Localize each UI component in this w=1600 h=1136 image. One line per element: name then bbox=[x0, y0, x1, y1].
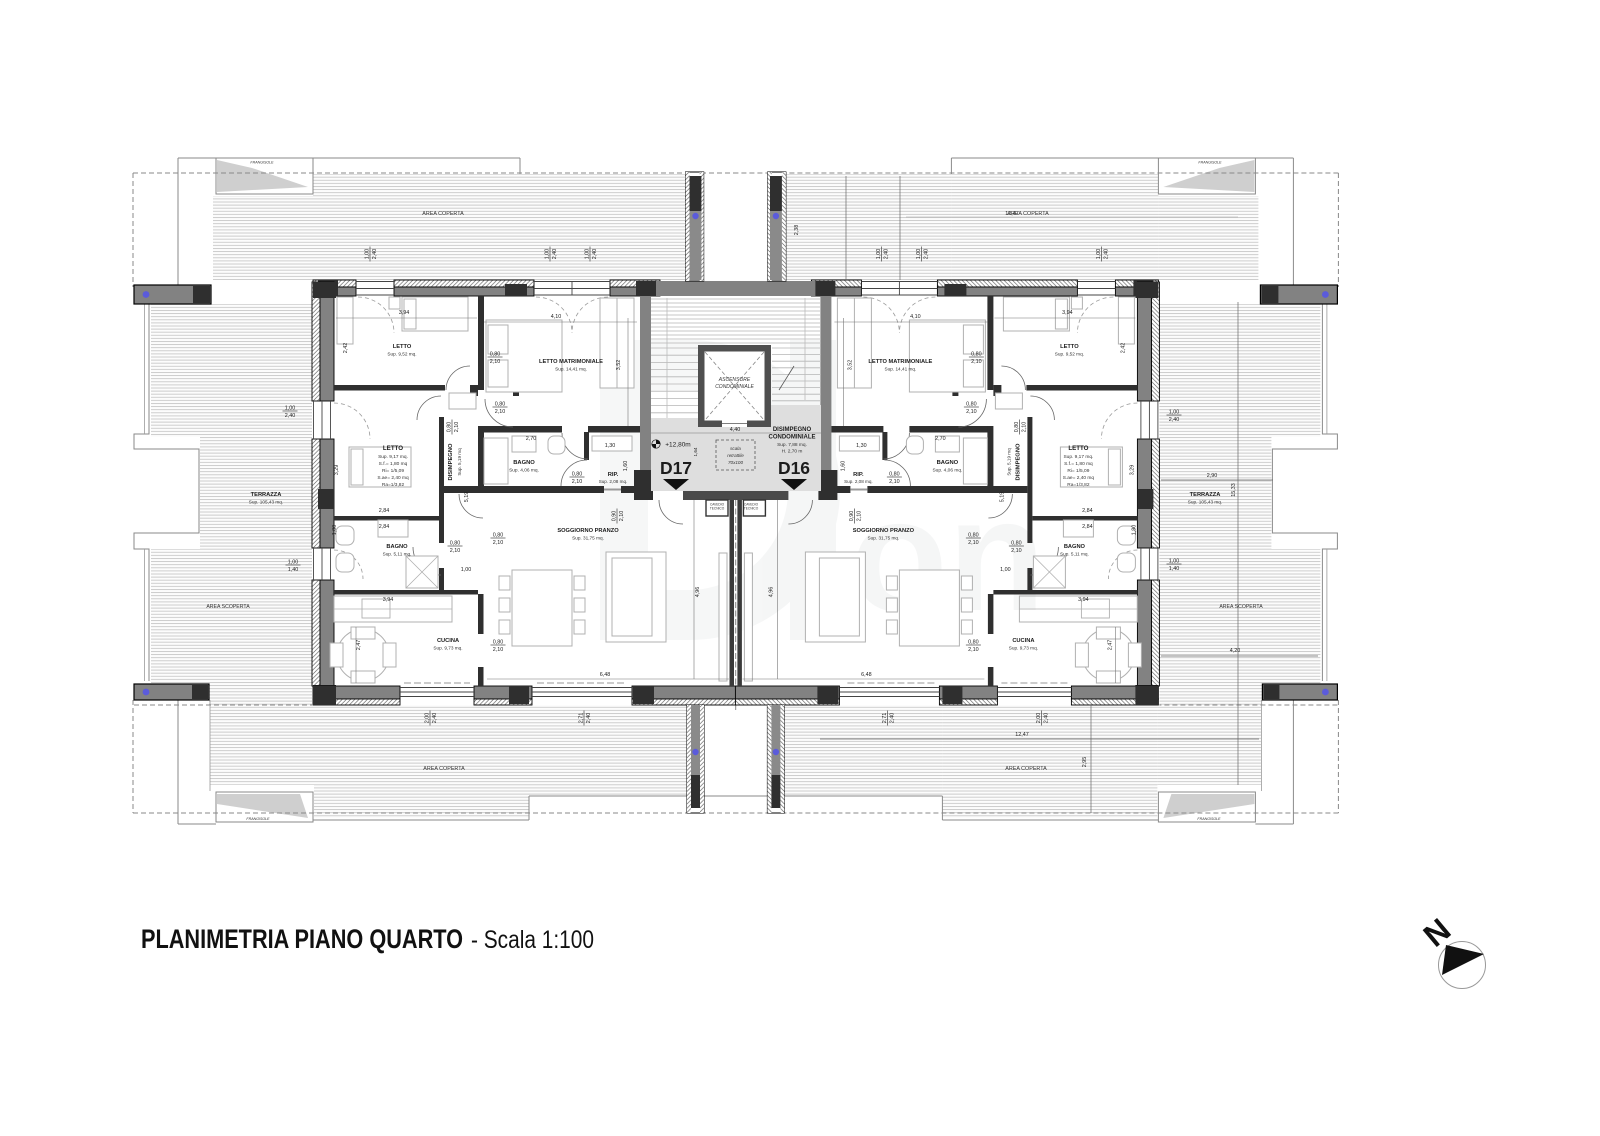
svg-text:0,90: 0,90 bbox=[611, 511, 617, 522]
svg-text:AREA SCOPERTA: AREA SCOPERTA bbox=[1219, 604, 1263, 610]
svg-text:Sup. 5,19 mq: Sup. 5,19 mq bbox=[457, 448, 462, 476]
svg-text:Ra=1/3,82: Ra=1/3,82 bbox=[382, 482, 405, 488]
svg-text:0,90: 0,90 bbox=[849, 511, 855, 522]
svg-text:1,80: 1,80 bbox=[1131, 525, 1137, 536]
svg-text:CUCINA: CUCINA bbox=[1012, 638, 1034, 644]
svg-text:4,10: 4,10 bbox=[551, 314, 562, 320]
svg-text:2,40: 2,40 bbox=[1104, 249, 1110, 260]
svg-text:Sup. 5,11 mq.: Sup. 5,11 mq. bbox=[383, 552, 412, 557]
svg-text:1,00: 1,00 bbox=[876, 249, 882, 260]
svg-text:SOGGIORNO PRANZO: SOGGIORNO PRANZO bbox=[557, 528, 619, 534]
svg-text:2,10: 2,10 bbox=[966, 409, 977, 415]
svg-text:AREA COPERTA: AREA COPERTA bbox=[423, 766, 465, 772]
svg-text:4,96: 4,96 bbox=[695, 587, 701, 598]
svg-text:2,10: 2,10 bbox=[971, 359, 982, 365]
svg-text:TECNICO: TECNICO bbox=[710, 507, 725, 511]
svg-text:1,00: 1,00 bbox=[285, 405, 296, 411]
svg-text:2,40: 2,40 bbox=[592, 249, 598, 260]
svg-text:3,29: 3,29 bbox=[1129, 465, 1135, 476]
svg-text:CUCINA: CUCINA bbox=[437, 638, 459, 644]
svg-text:Sup. 9,73 mq.: Sup. 9,73 mq. bbox=[1009, 646, 1038, 651]
svg-text:S.f.= 1,80 mq: S.f.= 1,80 mq bbox=[379, 461, 408, 467]
svg-text:6,48: 6,48 bbox=[861, 672, 872, 678]
svg-text:2,10: 2,10 bbox=[968, 647, 979, 653]
svg-text:2,10: 2,10 bbox=[857, 511, 863, 522]
svg-text:FRANGISOLE: FRANGISOLE bbox=[1198, 161, 1222, 165]
svg-text:PLANIMETRIA PIANO QUARTO: PLANIMETRIA PIANO QUARTO bbox=[141, 924, 463, 954]
svg-text:2,71: 2,71 bbox=[578, 713, 584, 724]
svg-text:1,00: 1,00 bbox=[461, 567, 472, 573]
svg-text:2,95: 2,95 bbox=[1082, 757, 1088, 768]
svg-text:Sup. 2,08 mq.: Sup. 2,08 mq. bbox=[844, 479, 873, 484]
svg-text:1,00: 1,00 bbox=[288, 559, 299, 565]
svg-text:0,80: 0,80 bbox=[966, 401, 977, 407]
svg-text:1,40: 1,40 bbox=[288, 567, 299, 573]
svg-text:4,20: 4,20 bbox=[1230, 648, 1241, 654]
svg-text:LETTO MATRIMONIALE: LETTO MATRIMONIALE bbox=[539, 359, 603, 365]
svg-text:Sup. 14,41 mq.: Sup. 14,41 mq. bbox=[555, 367, 587, 372]
svg-text:2,90: 2,90 bbox=[1207, 473, 1218, 479]
svg-text:LETTO: LETTO bbox=[383, 445, 403, 452]
svg-text:Sup. 9,52 mq.: Sup. 9,52 mq. bbox=[1055, 352, 1084, 357]
svg-text:2,40: 2,40 bbox=[432, 713, 438, 724]
svg-text:2,40: 2,40 bbox=[552, 249, 558, 260]
svg-text:4,96: 4,96 bbox=[768, 587, 774, 598]
svg-text:D16: D16 bbox=[778, 458, 810, 478]
svg-text:2,70: 2,70 bbox=[935, 436, 946, 442]
svg-text:70x100: 70x100 bbox=[728, 460, 744, 465]
svg-text:2,40: 2,40 bbox=[285, 413, 296, 419]
svg-text:AREA COPERTA: AREA COPERTA bbox=[1007, 211, 1049, 217]
svg-text:TERRAZZA: TERRAZZA bbox=[1190, 492, 1221, 498]
svg-text:3,52: 3,52 bbox=[616, 360, 622, 371]
svg-text:Sup. 5,11 mq.: Sup. 5,11 mq. bbox=[1060, 552, 1089, 557]
svg-text:+12,80m: +12,80m bbox=[665, 442, 690, 449]
svg-text:2,10: 2,10 bbox=[1011, 548, 1022, 554]
svg-text:2,10: 2,10 bbox=[572, 479, 583, 485]
svg-text:LETTO MATRIMONIALE: LETTO MATRIMONIALE bbox=[868, 359, 932, 365]
svg-text:CONDOMINIALE: CONDOMINIALE bbox=[769, 435, 816, 441]
svg-text:Sup. 9,73 mq.: Sup. 9,73 mq. bbox=[433, 646, 462, 651]
svg-text:RIP.: RIP. bbox=[608, 472, 619, 478]
svg-text:4,10: 4,10 bbox=[910, 314, 921, 320]
svg-text:2,40: 2,40 bbox=[1169, 417, 1180, 423]
svg-text:1,30: 1,30 bbox=[605, 443, 616, 449]
svg-text:0,80: 0,80 bbox=[968, 639, 979, 645]
svg-text:0,80: 0,80 bbox=[490, 351, 501, 357]
svg-text:S.ae= 2,40 mq: S.ae= 2,40 mq bbox=[377, 475, 409, 481]
svg-text:Sup. 7,88 mq.: Sup. 7,88 mq. bbox=[777, 442, 807, 448]
svg-text:BAGNO: BAGNO bbox=[386, 544, 408, 550]
svg-text:2,10: 2,10 bbox=[454, 422, 460, 433]
svg-text:BAGNO: BAGNO bbox=[513, 460, 535, 466]
svg-text:2,00: 2,00 bbox=[1036, 713, 1042, 724]
svg-text:2,84: 2,84 bbox=[379, 508, 390, 514]
svg-text:0,80: 0,80 bbox=[450, 540, 461, 546]
svg-text:2,42: 2,42 bbox=[1120, 343, 1126, 354]
svg-text:2,71: 2,71 bbox=[882, 713, 888, 724]
svg-text:15,33: 15,33 bbox=[1231, 483, 1237, 497]
svg-text:0,80: 0,80 bbox=[1011, 540, 1022, 546]
svg-text:LETTO: LETTO bbox=[393, 344, 412, 350]
svg-text:1,00: 1,00 bbox=[1096, 249, 1102, 260]
svg-text:2,40: 2,40 bbox=[884, 249, 890, 260]
svg-text:0,80: 0,80 bbox=[1014, 422, 1020, 433]
svg-text:0,80: 0,80 bbox=[495, 401, 506, 407]
svg-text:2,47: 2,47 bbox=[1107, 640, 1113, 651]
svg-text:- Scala 1:100: - Scala 1:100 bbox=[471, 926, 594, 954]
svg-text:CONDOMINIALE: CONDOMINIALE bbox=[715, 384, 754, 390]
svg-text:0,80: 0,80 bbox=[968, 532, 979, 538]
svg-text:1,60: 1,60 bbox=[623, 461, 629, 472]
svg-text:TECNICO: TECNICO bbox=[744, 507, 759, 511]
svg-text:RIP.: RIP. bbox=[853, 472, 864, 478]
svg-text:1,00: 1,00 bbox=[1000, 567, 1011, 573]
svg-text:Sup. 2,08 mq.: Sup. 2,08 mq. bbox=[599, 479, 628, 484]
svg-text:4,40: 4,40 bbox=[730, 427, 741, 433]
svg-text:6,48: 6,48 bbox=[600, 672, 611, 678]
svg-text:3,52: 3,52 bbox=[847, 360, 853, 371]
svg-text:0,80: 0,80 bbox=[889, 471, 900, 477]
svg-text:5,19: 5,19 bbox=[999, 492, 1005, 503]
svg-text:scala: scala bbox=[730, 446, 741, 451]
svg-text:1,30: 1,30 bbox=[856, 443, 867, 449]
svg-text:1,60: 1,60 bbox=[840, 461, 846, 472]
svg-text:1,00: 1,00 bbox=[584, 249, 590, 260]
svg-text:2,40: 2,40 bbox=[1044, 713, 1050, 724]
svg-text:3,94: 3,94 bbox=[383, 597, 394, 603]
svg-text:1,00: 1,00 bbox=[544, 249, 550, 260]
svg-text:12,47: 12,47 bbox=[1015, 732, 1029, 738]
svg-text:2,10: 2,10 bbox=[495, 409, 506, 415]
svg-text:TERRAZZA: TERRAZZA bbox=[251, 492, 282, 498]
svg-text:0,80: 0,80 bbox=[446, 422, 452, 433]
svg-text:2,84: 2,84 bbox=[1082, 524, 1093, 530]
svg-text:2,40: 2,40 bbox=[372, 249, 378, 260]
svg-text:AREA COPERTA: AREA COPERTA bbox=[1005, 766, 1047, 772]
svg-text:S.ae= 2,40 mq: S.ae= 2,40 mq bbox=[1063, 475, 1095, 481]
svg-text:Sup. 9,17 mq.: Sup. 9,17 mq. bbox=[1063, 454, 1093, 460]
svg-text:Sup. 4,06 mq.: Sup. 4,06 mq. bbox=[932, 468, 962, 474]
svg-text:BAGNO: BAGNO bbox=[1064, 544, 1086, 550]
svg-text:Sup. 4,06 mq.: Sup. 4,06 mq. bbox=[509, 468, 539, 474]
svg-text:2,10: 2,10 bbox=[889, 479, 900, 485]
svg-text:1,40: 1,40 bbox=[1169, 566, 1180, 572]
svg-text:DISIMPEGNO: DISIMPEGNO bbox=[448, 443, 454, 481]
svg-text:2,42: 2,42 bbox=[343, 343, 349, 354]
svg-text:LETTO: LETTO bbox=[1068, 445, 1088, 452]
svg-text:1,00: 1,00 bbox=[1169, 558, 1180, 564]
svg-text:LETTO: LETTO bbox=[1060, 344, 1079, 350]
svg-text:2,40: 2,40 bbox=[890, 713, 896, 724]
svg-text:2,00: 2,00 bbox=[424, 713, 430, 724]
svg-text:2,40: 2,40 bbox=[924, 249, 930, 260]
svg-text:2,10: 2,10 bbox=[490, 359, 501, 365]
svg-text:S.f.= 1,80 mq: S.f.= 1,80 mq bbox=[1064, 461, 1093, 467]
svg-text:2,10: 2,10 bbox=[493, 647, 504, 653]
svg-text:FRANGISOLE: FRANGISOLE bbox=[250, 161, 274, 165]
svg-text:3,94: 3,94 bbox=[1062, 310, 1073, 316]
svg-text:2,10: 2,10 bbox=[619, 511, 625, 522]
svg-text:2,10: 2,10 bbox=[450, 548, 461, 554]
svg-text:Sup. 14,41 mq.: Sup. 14,41 mq. bbox=[885, 367, 917, 372]
svg-text:BAGNO: BAGNO bbox=[937, 460, 959, 466]
svg-text:Sup. 105,43 mq.: Sup. 105,43 mq. bbox=[249, 500, 283, 505]
svg-text:1,00: 1,00 bbox=[364, 249, 370, 260]
svg-text:2,38: 2,38 bbox=[794, 225, 800, 236]
svg-text:2,10: 2,10 bbox=[1022, 422, 1028, 433]
svg-text:Sup. 9,52 mq.: Sup. 9,52 mq. bbox=[387, 352, 416, 357]
svg-text:FRANGISOLE: FRANGISOLE bbox=[1197, 817, 1221, 821]
svg-text:0,80: 0,80 bbox=[493, 532, 504, 538]
svg-text:AREA COPERTA: AREA COPERTA bbox=[422, 211, 464, 217]
svg-text:DISIMPEGNO: DISIMPEGNO bbox=[773, 427, 812, 433]
svg-text:2,70: 2,70 bbox=[526, 436, 537, 442]
svg-text:1,00: 1,00 bbox=[1169, 409, 1180, 415]
svg-text:0,80: 0,80 bbox=[572, 471, 583, 477]
svg-text:AREA SCOPERTA: AREA SCOPERTA bbox=[206, 604, 250, 610]
svg-text:SOGGIORNO PRANZO: SOGGIORNO PRANZO bbox=[853, 528, 915, 534]
svg-text:2,10: 2,10 bbox=[493, 540, 504, 546]
svg-text:Sup. 105,43 mq.: Sup. 105,43 mq. bbox=[1188, 500, 1222, 505]
svg-text:retrattile: retrattile bbox=[727, 453, 744, 458]
svg-text:FRANGISOLE: FRANGISOLE bbox=[246, 817, 270, 821]
svg-text:Ra=1/3,82: Ra=1/3,82 bbox=[1067, 482, 1090, 488]
svg-text:0,80: 0,80 bbox=[493, 639, 504, 645]
svg-text:Sup. 5,19 mq: Sup. 5,19 mq bbox=[1006, 448, 1011, 476]
svg-text:0,80: 0,80 bbox=[971, 351, 982, 357]
svg-text:1,00: 1,00 bbox=[916, 249, 922, 260]
svg-text:DISIMPEGNO: DISIMPEGNO bbox=[1015, 443, 1021, 481]
svg-text:2,10: 2,10 bbox=[968, 540, 979, 546]
svg-text:Ri= 1/5,09: Ri= 1/5,09 bbox=[1067, 468, 1089, 474]
svg-text:1,64: 1,64 bbox=[693, 447, 698, 456]
svg-text:5,19: 5,19 bbox=[464, 492, 470, 503]
svg-text:2,40: 2,40 bbox=[586, 713, 592, 724]
svg-text:3,29: 3,29 bbox=[334, 465, 340, 476]
svg-text:Sup. 9,17 mq.: Sup. 9,17 mq. bbox=[378, 454, 408, 460]
svg-text:3,94: 3,94 bbox=[399, 310, 410, 316]
svg-text:H. 2,70 m: H. 2,70 m bbox=[782, 449, 803, 455]
svg-text:Ri= 1/5,09: Ri= 1/5,09 bbox=[382, 468, 404, 474]
svg-text:ASCENSORE: ASCENSORE bbox=[718, 377, 751, 383]
svg-text:2,47: 2,47 bbox=[356, 640, 362, 651]
svg-text:2,84: 2,84 bbox=[379, 524, 390, 530]
svg-text:1,80: 1,80 bbox=[332, 525, 338, 536]
svg-text:3,94: 3,94 bbox=[1078, 597, 1089, 603]
svg-text:2,84: 2,84 bbox=[1082, 508, 1093, 514]
svg-text:Sup. 31,75 mq.: Sup. 31,75 mq. bbox=[868, 536, 900, 541]
svg-text:D17: D17 bbox=[660, 458, 692, 478]
svg-text:Sup. 31,75 mq.: Sup. 31,75 mq. bbox=[572, 536, 604, 541]
